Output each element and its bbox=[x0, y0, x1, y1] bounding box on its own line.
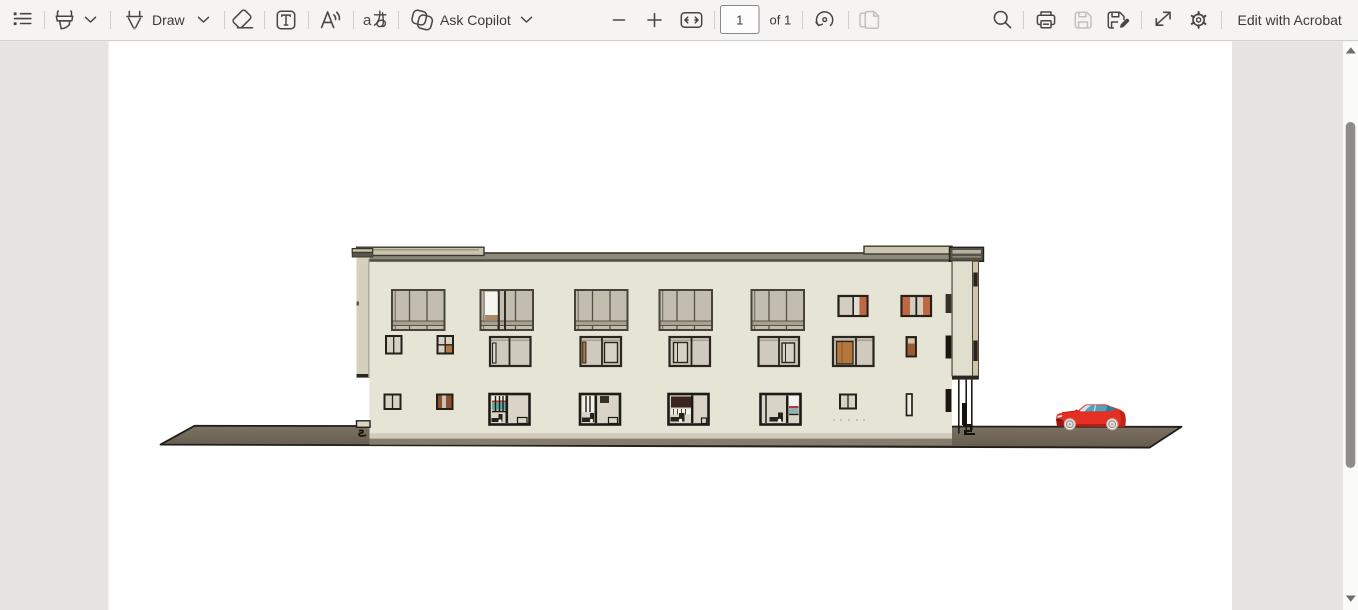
svg-text:of 1: of 1 bbox=[770, 13, 792, 28]
svg-text:Draw: Draw bbox=[152, 12, 186, 28]
svg-text:a: a bbox=[363, 12, 372, 29]
svg-text:Ask Copilot: Ask Copilot bbox=[440, 12, 511, 28]
svg-text:1: 1 bbox=[736, 12, 743, 27]
svg-text:Edit with Acrobat: Edit with Acrobat bbox=[1238, 12, 1342, 28]
